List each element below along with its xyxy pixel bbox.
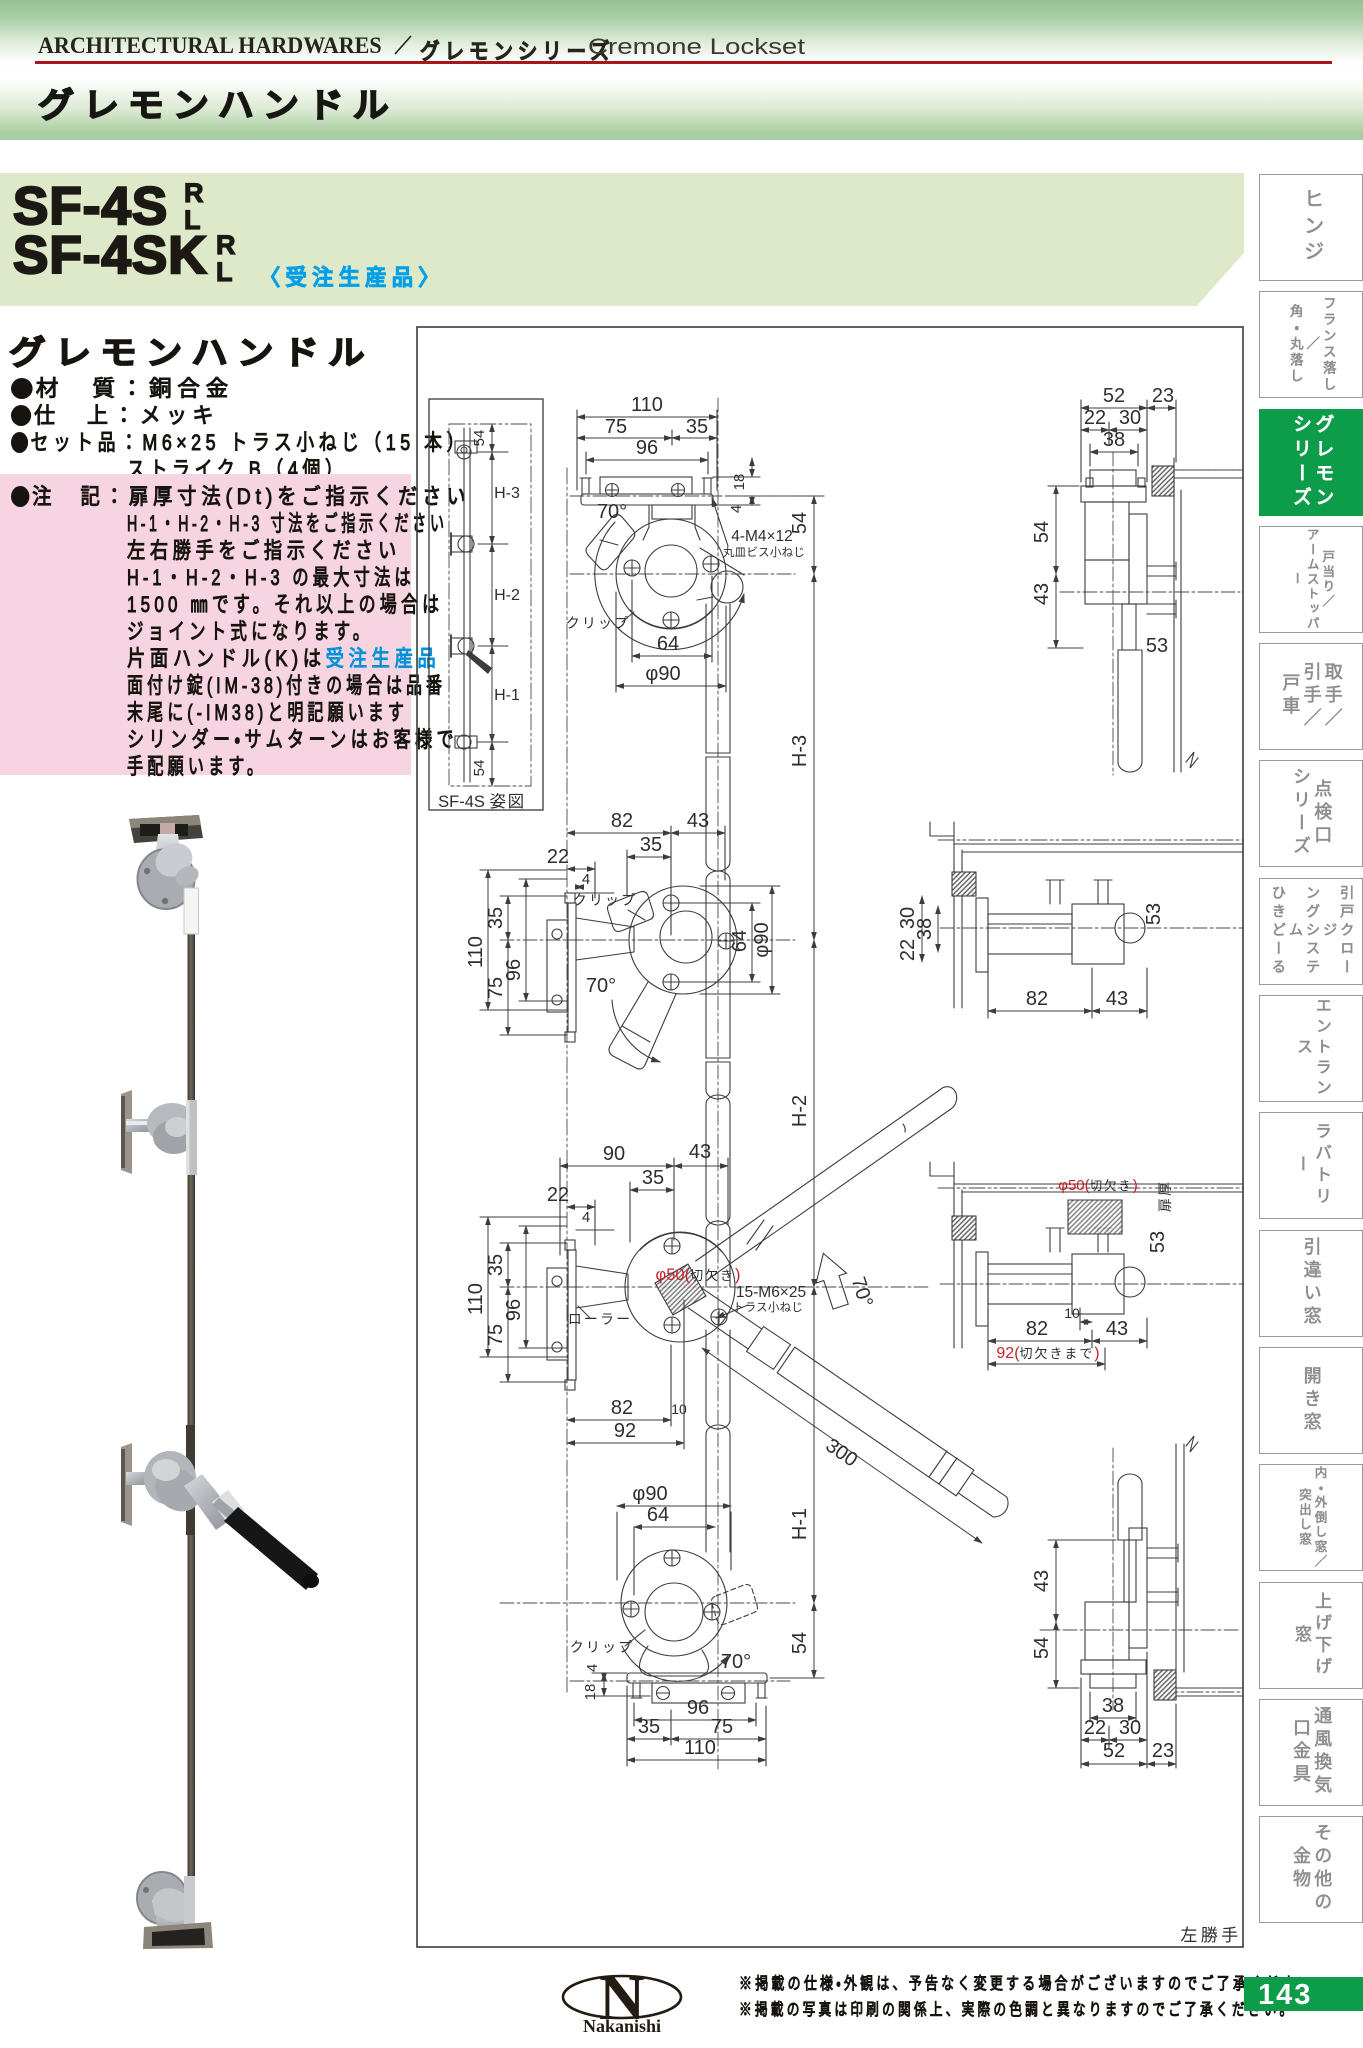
svg-text:43: 43 (1031, 1570, 1053, 1592)
svg-text:96: 96 (636, 437, 658, 459)
svg-text:52: 52 (1103, 385, 1125, 407)
svg-text:18: 18 (582, 1684, 599, 1701)
svg-text:110: 110 (631, 394, 663, 416)
svg-text:96: 96 (687, 1697, 709, 1719)
svg-text:75: 75 (711, 1716, 733, 1738)
svg-text:38: 38 (1102, 1695, 1124, 1717)
svg-text:Nakanishi: Nakanishi (583, 2016, 661, 2034)
svg-text:38: 38 (1103, 429, 1125, 451)
svg-text:23: 23 (1152, 385, 1174, 407)
svg-text:300: 300 (821, 1435, 861, 1472)
svg-text:4: 4 (728, 505, 745, 513)
svg-text:54: 54 (471, 430, 488, 447)
svg-text:54: 54 (789, 1632, 811, 1654)
svg-text:70°: 70° (586, 975, 616, 997)
svg-text:110: 110 (465, 1283, 487, 1315)
svg-text:38: 38 (914, 918, 936, 940)
svg-text:35: 35 (642, 1167, 664, 1189)
svg-text:92(切欠きまで): 92(切欠きまで) (996, 1345, 1099, 1362)
svg-text:52: 52 (1103, 1740, 1125, 1762)
svg-text:H-2: H-2 (789, 1095, 811, 1127)
svg-text:SF-4S 姿図: SF-4S 姿図 (438, 792, 526, 811)
svg-text:H-2: H-2 (494, 587, 520, 604)
svg-text:H-1: H-1 (494, 687, 520, 704)
svg-text:トラス小ねじ: トラス小ねじ (733, 1301, 803, 1314)
svg-text:96: 96 (503, 1299, 525, 1321)
svg-text:35: 35 (485, 1254, 507, 1276)
svg-text:22: 22 (1084, 1717, 1106, 1739)
svg-text:82: 82 (1026, 1318, 1048, 1340)
svg-text:φ50(切欠き): φ50(切欠き) (1058, 1177, 1138, 1194)
svg-text:23: 23 (1152, 1740, 1174, 1762)
svg-text:H-3: H-3 (789, 735, 811, 767)
svg-text:54: 54 (1031, 1637, 1053, 1659)
svg-text:53: 53 (1143, 903, 1165, 925)
svg-text:10: 10 (1064, 1305, 1080, 1321)
svg-text:左勝手: 左勝手 (1180, 1926, 1241, 1945)
svg-text:43: 43 (687, 810, 709, 832)
svg-text:110: 110 (684, 1737, 716, 1759)
svg-text:H-1: H-1 (789, 1508, 811, 1540)
svg-text:22: 22 (547, 846, 569, 868)
svg-text:4: 4 (582, 1209, 590, 1226)
svg-text:35: 35 (485, 907, 507, 929)
svg-text:53: 53 (1147, 1231, 1169, 1253)
svg-text:ローラー: ローラー (568, 1311, 632, 1327)
svg-text:54: 54 (1031, 521, 1053, 543)
svg-text:54: 54 (471, 760, 488, 777)
svg-text:φ90: φ90 (751, 922, 773, 957)
svg-text:35: 35 (686, 416, 708, 438)
svg-text:30: 30 (1119, 407, 1141, 429)
svg-text:クリップ: クリップ (566, 615, 630, 631)
svg-text:92: 92 (614, 1420, 636, 1442)
svg-text:H-3: H-3 (494, 485, 520, 502)
svg-text:43: 43 (1031, 583, 1053, 605)
svg-text:53: 53 (1146, 635, 1168, 657)
svg-text:35: 35 (638, 1716, 660, 1738)
svg-text:22: 22 (1084, 407, 1106, 429)
svg-text:クリップ: クリップ (570, 1639, 634, 1655)
svg-text:43: 43 (1106, 988, 1128, 1010)
svg-text:70°: 70° (847, 1274, 877, 1310)
svg-text:75: 75 (485, 1324, 507, 1346)
svg-text:82: 82 (611, 810, 633, 832)
svg-text:4: 4 (582, 871, 590, 888)
svg-text:φ50(切欠き): φ50(切欠き) (656, 1266, 741, 1284)
svg-text:扉厚: 扉厚 (1157, 1180, 1173, 1212)
svg-text:64: 64 (729, 930, 751, 952)
svg-text:φ90: φ90 (645, 663, 680, 685)
svg-text:75: 75 (605, 416, 627, 438)
svg-text:35: 35 (640, 834, 662, 856)
svg-text:丸皿ビス小ねじ: 丸皿ビス小ねじ (723, 546, 805, 559)
svg-text:4: 4 (584, 1664, 601, 1672)
svg-text:22: 22 (547, 1184, 569, 1206)
svg-text:70°: 70° (597, 501, 627, 523)
svg-text:82: 82 (1026, 988, 1048, 1010)
svg-text:64: 64 (657, 633, 679, 655)
svg-text:30: 30 (1119, 1717, 1141, 1739)
svg-text:4-M4×12: 4-M4×12 (731, 528, 793, 545)
svg-text:15-M6×25: 15-M6×25 (736, 1284, 806, 1301)
svg-text:22: 22 (897, 939, 919, 961)
svg-text:43: 43 (1106, 1318, 1128, 1340)
svg-text:90: 90 (603, 1143, 625, 1165)
svg-text:96: 96 (503, 959, 525, 981)
svg-text:70°: 70° (721, 1651, 751, 1673)
svg-text:110: 110 (465, 936, 487, 968)
svg-text:64: 64 (647, 1504, 669, 1526)
svg-text:φ90: φ90 (632, 1483, 667, 1505)
svg-text:82: 82 (611, 1397, 633, 1419)
svg-text:18: 18 (731, 474, 748, 491)
svg-text:10: 10 (671, 1401, 687, 1417)
svg-text:43: 43 (689, 1141, 711, 1163)
